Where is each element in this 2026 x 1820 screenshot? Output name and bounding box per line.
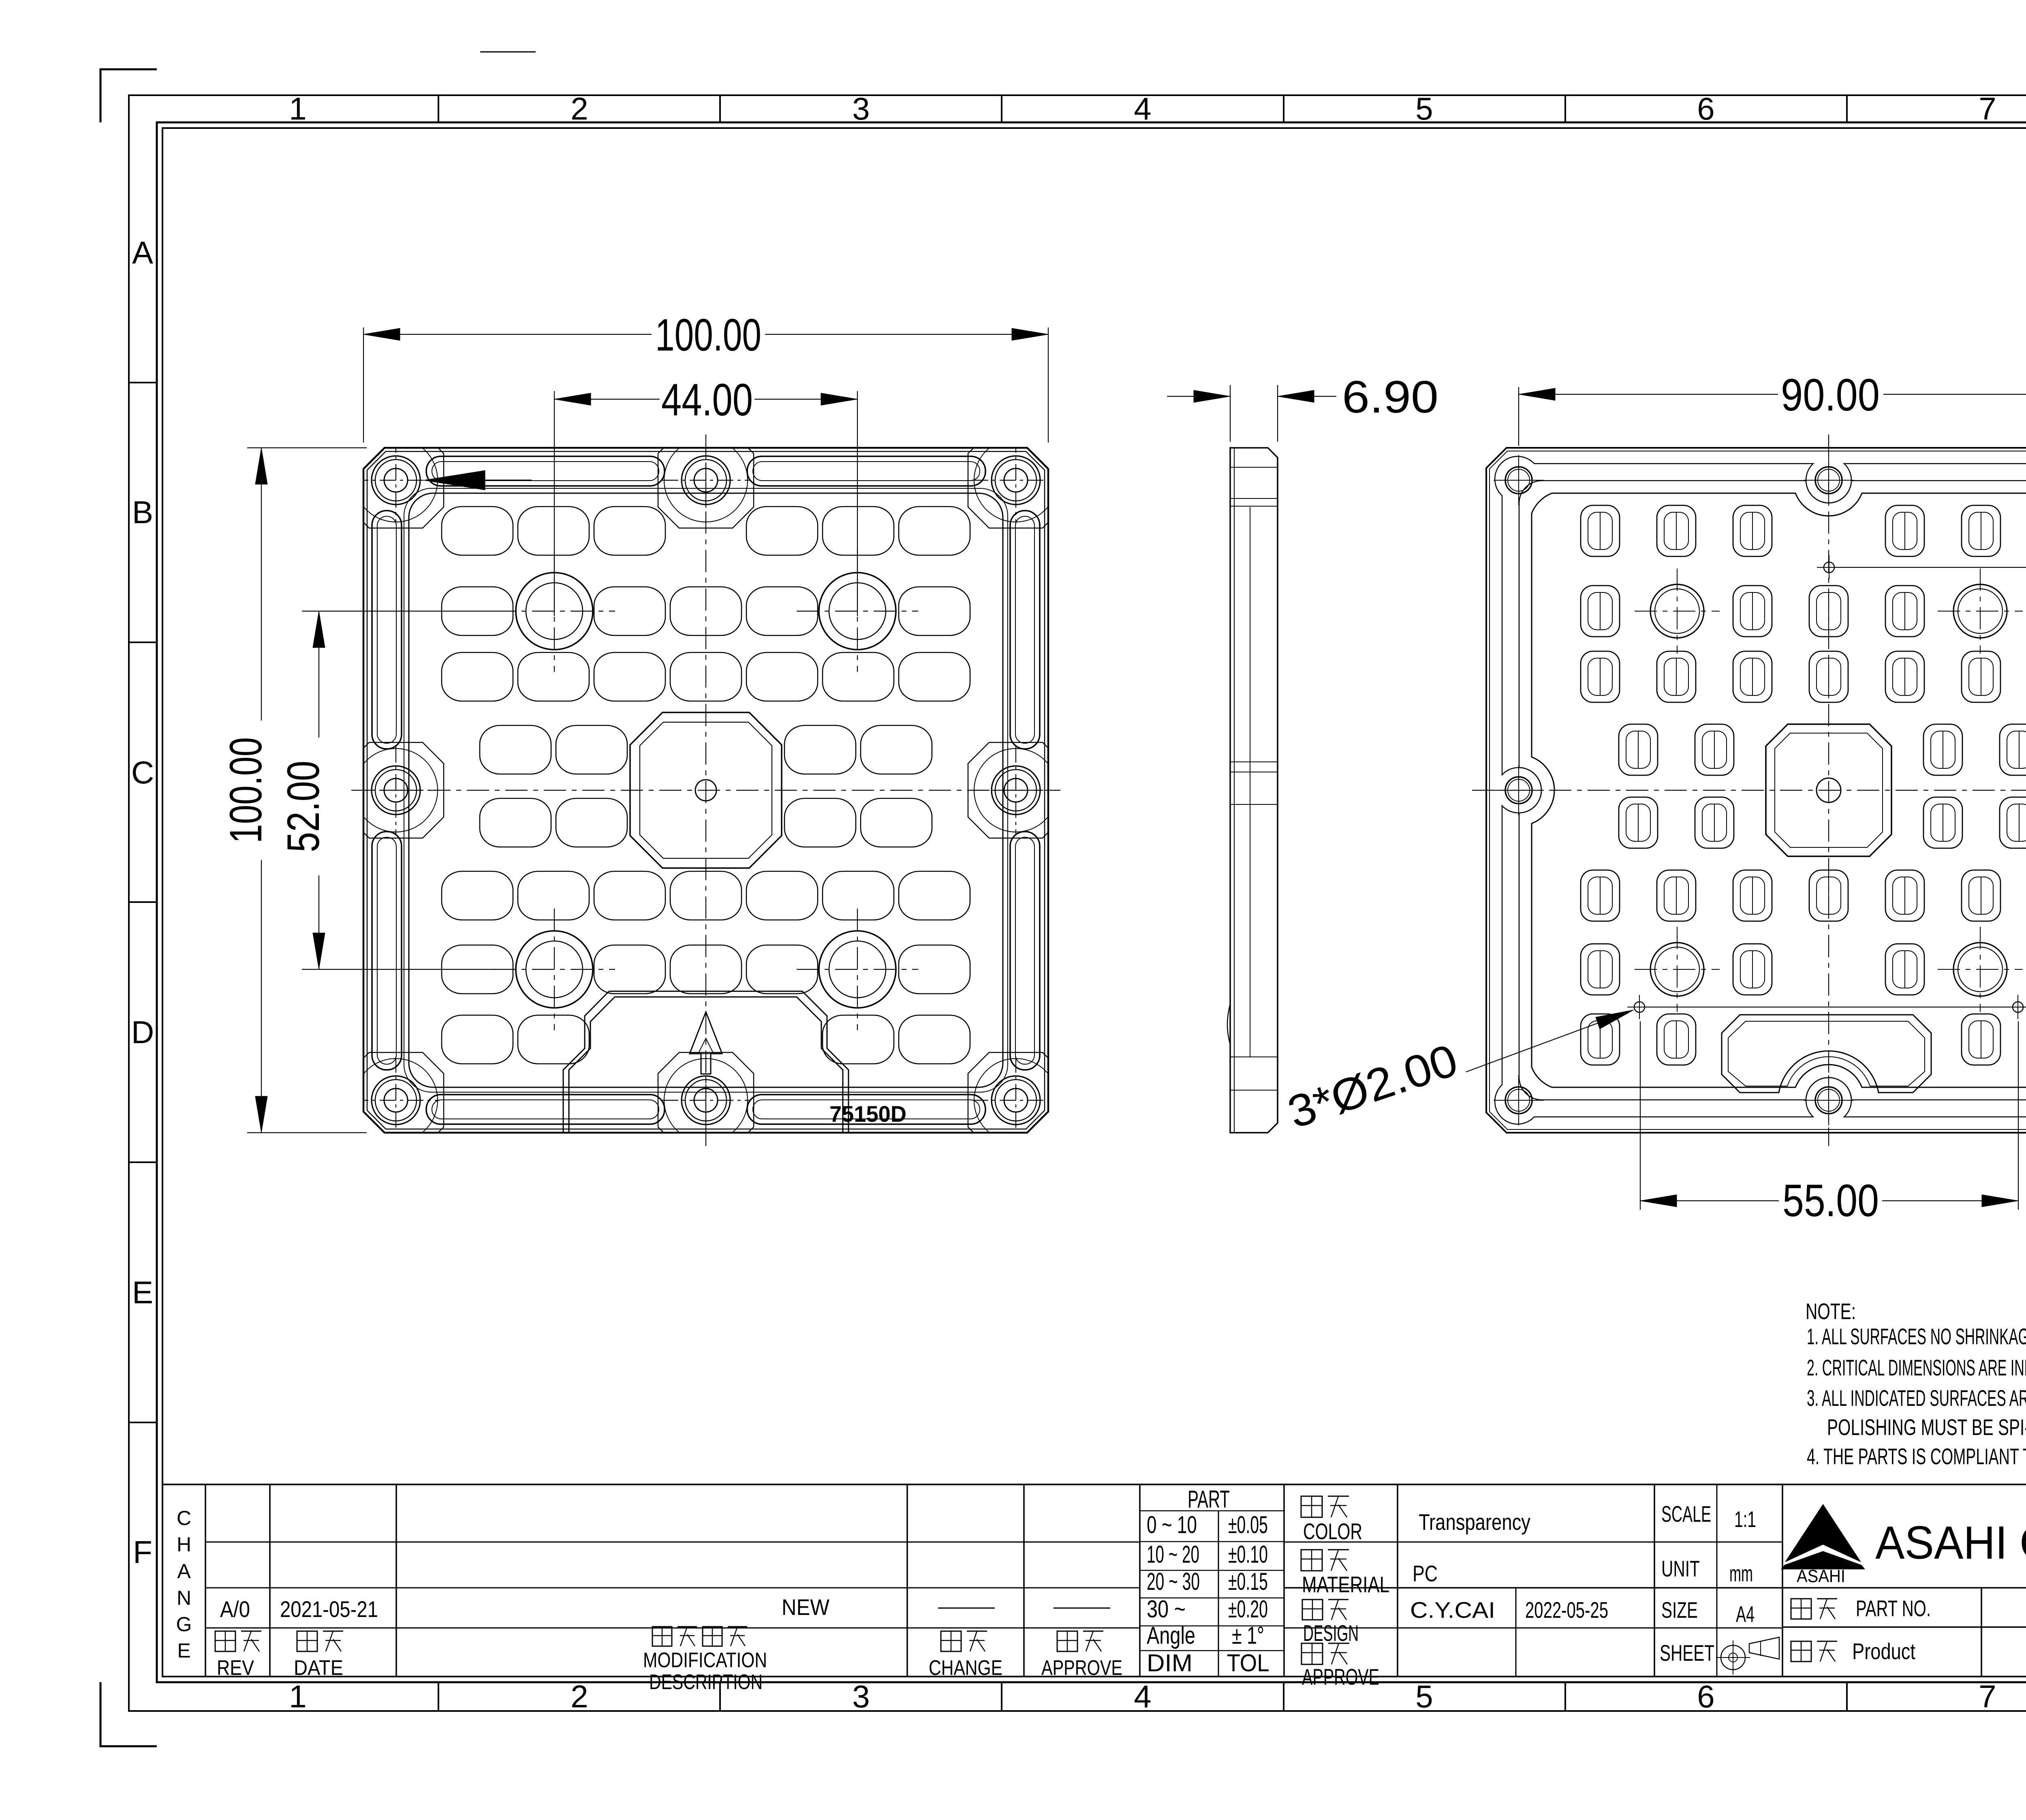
svg-text:SHEET: SHEET — [1660, 1640, 1714, 1666]
svg-text:3. ALL INDICATED SURFACES ARE: 3. ALL INDICATED SURFACES ARE POLISHED, … — [1807, 1385, 2026, 1411]
svg-text:E: E — [177, 1639, 190, 1662]
svg-text:NOTE:: NOTE: — [1806, 1298, 1856, 1324]
svg-text:COLOR: COLOR — [1303, 1518, 1362, 1544]
svg-text:ASAHI: ASAHI — [1797, 1566, 1845, 1586]
svg-text:0 ~ 10: 0 ~ 10 — [1147, 1511, 1197, 1538]
svg-text:2: 2 — [571, 1679, 588, 1714]
svg-text:10 ~ 20: 10 ~ 20 — [1147, 1541, 1199, 1568]
svg-text:E: E — [132, 1275, 153, 1310]
svg-text:NEW: NEW — [782, 1594, 829, 1620]
svg-text:DIM: DIM — [1147, 1649, 1193, 1677]
svg-text:±0.05: ±0.05 — [1228, 1511, 1268, 1538]
svg-text:2: 2 — [571, 91, 588, 126]
svg-text:7: 7 — [1979, 91, 1996, 126]
svg-text:DESCRIPTION: DESCRIPTION — [649, 1670, 763, 1694]
svg-text:2022-05-25: 2022-05-25 — [1525, 1597, 1608, 1623]
svg-text:100.00: 100.00 — [220, 737, 271, 843]
svg-text:Angle: Angle — [1147, 1622, 1195, 1649]
svg-text:1. ALL SURFACES NO SHRINKAGE,B: 1. ALL SURFACES NO SHRINKAGE,BURRS,JUNCT… — [1807, 1324, 2026, 1349]
svg-text:UNIT: UNIT — [1661, 1556, 1700, 1581]
svg-text:Transparency: Transparency — [1419, 1509, 1530, 1535]
svg-text:A: A — [177, 1560, 191, 1583]
svg-text:± 1°: ± 1° — [1232, 1622, 1264, 1649]
svg-text:PART: PART — [1188, 1486, 1230, 1513]
svg-text:D: D — [131, 1014, 154, 1050]
svg-text:N: N — [177, 1587, 191, 1609]
svg-text:C: C — [177, 1507, 191, 1529]
svg-text:1: 1 — [289, 91, 306, 126]
svg-text:3: 3 — [852, 1679, 870, 1714]
svg-text:MODIFICATION: MODIFICATION — [643, 1649, 767, 1672]
svg-text:5: 5 — [1415, 91, 1433, 126]
svg-text:mm: mm — [1729, 1561, 1753, 1586]
svg-text:5: 5 — [1415, 1679, 1433, 1714]
svg-text:Product: Product — [1852, 1638, 1915, 1664]
svg-text:A: A — [132, 235, 153, 270]
svg-text:POLISHING MUST BE SPI-A1 STAND: POLISHING MUST BE SPI-A1 STANDARD — [1827, 1414, 2026, 1440]
svg-text:6.90: 6.90 — [1342, 372, 1438, 422]
svg-text:75150D: 75150D — [829, 1101, 906, 1127]
svg-text:4: 4 — [1134, 1679, 1151, 1714]
svg-text:44.00: 44.00 — [661, 374, 753, 425]
svg-text:PART NO.: PART NO. — [1856, 1595, 1931, 1621]
svg-text:7: 7 — [1979, 1679, 1996, 1714]
svg-text:A/0: A/0 — [220, 1596, 250, 1622]
svg-text:4: 4 — [1134, 91, 1151, 126]
svg-text:C: C — [131, 755, 154, 790]
svg-text:6: 6 — [1697, 1679, 1714, 1714]
svg-text:30 ~: 30 ~ — [1147, 1595, 1186, 1623]
svg-text:A4: A4 — [1736, 1601, 1755, 1627]
svg-text:±0.20: ±0.20 — [1228, 1595, 1268, 1623]
svg-text:H: H — [177, 1533, 191, 1556]
svg-text:MATERIAL: MATERIAL — [1302, 1572, 1389, 1597]
svg-text:SCALE: SCALE — [1661, 1501, 1711, 1527]
svg-text:±0.10: ±0.10 — [1228, 1541, 1268, 1568]
svg-text:6: 6 — [1697, 91, 1714, 126]
svg-text:C.Y.CAI: C.Y.CAI — [1410, 1597, 1495, 1623]
svg-text:APPROVE: APPROVE — [1302, 1664, 1379, 1690]
svg-text:CHANGE: CHANGE — [929, 1656, 1002, 1680]
svg-text:SIZE: SIZE — [1661, 1597, 1698, 1623]
svg-text:90.00: 90.00 — [1781, 370, 1880, 420]
svg-text:G: G — [176, 1613, 192, 1636]
svg-text:2. CRITICAL DIMENSIONS ARE IND: 2. CRITICAL DIMENSIONS ARE INDICATED ON … — [1807, 1355, 2026, 1380]
svg-text:PC: PC — [1413, 1561, 1438, 1586]
svg-text:1:1: 1:1 — [1734, 1506, 1756, 1532]
svg-text:4. THE PARTS IS COMPLIANT TO R: 4. THE PARTS IS COMPLIANT TO ROHS AND RE… — [1807, 1444, 2026, 1469]
svg-text:DATE: DATE — [294, 1656, 343, 1680]
svg-text:100.00: 100.00 — [655, 310, 761, 360]
svg-text:2021-05-21: 2021-05-21 — [280, 1596, 378, 1622]
svg-text:20 ~ 30: 20 ~ 30 — [1147, 1568, 1200, 1595]
svg-text:±0.15: ±0.15 — [1228, 1568, 1268, 1595]
svg-text:1: 1 — [289, 1679, 306, 1714]
svg-text:55.00: 55.00 — [1782, 1175, 1879, 1226]
svg-text:B: B — [132, 494, 153, 530]
svg-text:ASAHI OPTICS LIMITED: ASAHI OPTICS LIMITED — [1875, 1517, 2026, 1569]
svg-text:REV: REV — [217, 1656, 254, 1680]
svg-text:APPROVE: APPROVE — [1041, 1656, 1122, 1680]
svg-text:DESIGN: DESIGN — [1303, 1620, 1359, 1646]
svg-text:3: 3 — [852, 91, 870, 126]
svg-text:52.00: 52.00 — [278, 761, 329, 852]
svg-text:F: F — [133, 1534, 152, 1570]
svg-text:TOL: TOL — [1227, 1649, 1269, 1677]
